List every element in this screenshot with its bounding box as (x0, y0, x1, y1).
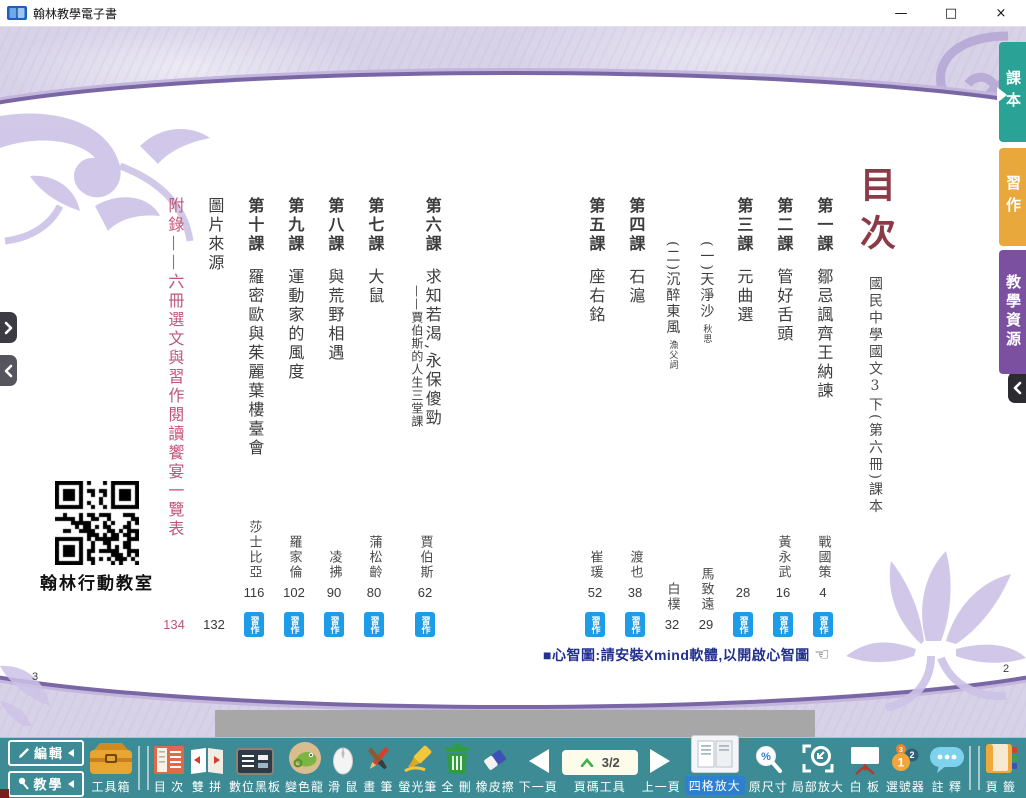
teach-mode-label: 教學 (33, 774, 63, 793)
book-stage: 課本 習作 教學資源 目次 國民中學國文3下(第六冊)課本 第一課鄒忌諷齊王納諫… (0, 26, 1026, 737)
toc-lesson-text: 座右銘 (586, 268, 605, 325)
trash-icon (443, 741, 471, 775)
toc-lesson-title[interactable]: 附錄——六冊選文與習作閱讀饗宴一覽表 (166, 197, 183, 539)
scrollbar-track (215, 710, 815, 737)
workbook-badge-label: 習作 (591, 616, 600, 634)
window-title: 翰林教學電子書 (33, 5, 117, 22)
toc-lesson-text: 石滬 (626, 268, 645, 306)
toc-lesson-title[interactable]: 第二課管好舌頭 (775, 197, 792, 344)
toc-lesson-title[interactable]: 第十課羅密歐與茱麗葉樓臺會 (246, 197, 263, 458)
toc-lesson-page[interactable]: 28 (736, 585, 750, 605)
brush-label: 畫 筆 (363, 778, 393, 795)
toc-lesson-number: 第四課 (626, 197, 645, 254)
chevron-right-icon (3, 321, 14, 335)
workbook-badge[interactable]: 習作 (324, 612, 344, 637)
mode-buttons: 編輯 教學 (8, 740, 84, 797)
page-number-left: 3 (32, 671, 38, 683)
workbook-badge[interactable]: 習作 (585, 612, 605, 637)
quad-zoom-icon (691, 735, 739, 773)
toc-lesson-column: 第四課石滬渡也38習作 (615, 197, 655, 637)
toc-lesson-number: 第九課 (285, 197, 304, 254)
edit-mode-button[interactable]: 編輯 (8, 740, 84, 766)
tab-workbook[interactable]: 習作 (999, 148, 1026, 246)
toc-lesson-text: 羅密歐與茱麗葉樓臺會 (245, 268, 264, 458)
workbook-badge[interactable]: 習作 (625, 612, 645, 637)
workbook-badge[interactable]: 習作 (284, 612, 304, 637)
workbook-badge-label: 習作 (779, 616, 788, 634)
quad-zoom-label: 四格放大 (685, 776, 745, 795)
toc-lesson-number: 第三課 (734, 197, 753, 254)
original-size-label: 原尺寸 (749, 778, 788, 795)
toc-lesson-column: 附錄——六冊選文與習作閱讀饗宴一覽表134 (154, 197, 194, 637)
prev-page-label: 上一頁 (642, 778, 681, 795)
qr-block: 翰林行動教室 (40, 481, 154, 594)
toc-lesson-text: 圖片來源 (205, 197, 224, 273)
app-window: 翰林教學電子書 — □ × (0, 0, 1026, 798)
workbook-badge[interactable]: 習作 (773, 612, 793, 637)
toc-lesson-column: 第五課座右銘崔瑗52習作 (575, 197, 615, 637)
toc-button[interactable]: 目 次 (153, 741, 185, 795)
toc-lesson-author: 賈伯斯 (416, 535, 435, 580)
toc-lesson-text: 鄒忌諷齊王納諫 (814, 268, 833, 401)
delete-all-label: 全 刪 (441, 778, 471, 795)
toc-lesson-column: 第二課管好舌頭黃永武16習作 (763, 197, 803, 637)
toc-lesson-text: (一)天淨沙 (698, 241, 714, 320)
toc-lesson-text: 求知若渴,永保傻勁 (423, 268, 442, 428)
chameleon-icon (288, 741, 322, 775)
toc-lesson-author: 白樸 (663, 582, 682, 612)
toc-lesson-annotation: 秋思 (701, 324, 711, 344)
toc-lesson-author: 黃永武 (774, 535, 793, 580)
toc-lesson-text: 運動家的風度 (285, 268, 304, 382)
digital-blackboard-button[interactable]: 數位黑板 (229, 741, 281, 795)
annotation-label: 註 釋 (932, 778, 962, 795)
chevron-left-icon (3, 364, 14, 378)
workbook-badge[interactable]: 習作 (813, 612, 833, 637)
close-button[interactable]: × (976, 0, 1026, 26)
workbook-badge-label: 習作 (739, 616, 748, 634)
arrow-left-icon (525, 741, 551, 775)
toc-lesson-subtitle: ——賈伯斯的人生三堂課 (410, 197, 423, 428)
toc-note-text: ■心智圖:請安裝Xmind軟體,以開啟心智圖 (543, 647, 810, 663)
mouse-button[interactable]: 滑 鼠 (328, 741, 358, 795)
svg-text:%: % (761, 751, 771, 763)
eraser-icon (480, 741, 510, 775)
qr-caption: 翰林行動教室 (40, 569, 154, 594)
number-picker-button[interactable]: 3 2 1 選號器 (886, 741, 925, 795)
partial-zoom-label: 局部放大 (792, 778, 844, 795)
original-size-button[interactable]: % 原尺寸 (749, 741, 788, 795)
pointing-hand-icon (814, 645, 830, 665)
page-back-button[interactable] (0, 355, 17, 386)
tab-resources-label: 教學資源 (1002, 274, 1023, 350)
toc-lesson-text: 附錄——六冊選文與習作閱讀饗宴一覽表 (165, 197, 184, 539)
toc-lesson-page[interactable]: 52 (588, 585, 602, 605)
toc-lesson-column: (二)沉醉東風漁父詞白樸32 (655, 197, 689, 637)
toc-lesson-title[interactable]: 圖片來源 (206, 197, 223, 273)
toc-title-block: 目次 國民中學國文3下(第六冊)課本 (843, 166, 907, 516)
eraser-button[interactable]: 橡皮擦 (476, 741, 515, 795)
whiteboard-button[interactable]: 白 板 (848, 741, 882, 795)
toc-lesson-title[interactable]: 第五課座右銘 (587, 197, 604, 325)
toc-title: 目次 (849, 166, 901, 262)
toc-lesson-number: 第八課 (325, 197, 344, 254)
toc-lesson-title[interactable]: 第七課大鼠 (366, 197, 383, 306)
page-tab-icon (984, 741, 1018, 775)
toc-lesson-page[interactable]: 29 (699, 617, 713, 637)
toc-lesson-title[interactable]: (一)天淨沙秋思 (699, 197, 714, 344)
toc-lesson-title[interactable]: 第三課元曲選 (735, 197, 752, 325)
workbook-badge-label: 習作 (819, 616, 828, 634)
svg-text:3: 3 (899, 747, 903, 754)
qr-code (55, 481, 139, 565)
mouse-icon (332, 741, 354, 775)
toc-lesson-author: 凌拂 (325, 550, 344, 580)
toc-lesson-column: 第八課與荒野相遇凌拂90習作 (314, 197, 354, 637)
toc-lesson-column: 第十課羅密歐與茱麗葉樓臺會莎士比亞116習作 (234, 197, 274, 637)
toc-lesson-page[interactable]: 62 (418, 585, 432, 605)
workbook-badge[interactable]: 習作 (364, 612, 384, 637)
blackboard-icon (236, 741, 274, 775)
toc-lesson-author: 崔瑗 (586, 550, 605, 580)
triangle-left-icon (68, 780, 74, 788)
toc-label: 目 次 (154, 778, 184, 795)
toc-lesson-page[interactable]: 102 (283, 585, 305, 605)
workbook-badge-label: 習作 (250, 616, 259, 634)
microphone-icon (18, 777, 29, 790)
toc-lesson-page[interactable]: 134 (163, 617, 185, 637)
page-indicator-field[interactable]: 3/2 (562, 750, 638, 775)
tab-resources[interactable]: 教學資源 (999, 250, 1026, 374)
toc-lesson-column: 圖片來源132 (194, 197, 234, 637)
toc-lesson-column: 第三課元曲選28習作 (723, 197, 763, 637)
prev-page-button[interactable]: 上一頁 (642, 741, 681, 795)
brush-button[interactable]: 畫 筆 (362, 741, 394, 795)
toc-lesson-column: 第七課大鼠蒲松齡80習作 (354, 197, 394, 637)
toolbox-icon (88, 741, 134, 775)
chevron-left-icon (1012, 381, 1023, 395)
toc-lesson-page[interactable]: 90 (327, 585, 341, 605)
toc-lesson-number: 第五課 (586, 197, 605, 254)
speech-bubble-icon (929, 741, 965, 775)
toc-lesson-title[interactable]: (二)沉醉東風漁父詞 (665, 197, 680, 370)
partial-zoom-button[interactable]: 局部放大 (792, 741, 844, 795)
maximize-button[interactable]: □ (926, 0, 976, 26)
brush-icon (362, 741, 394, 775)
toolbox-button[interactable]: 工具箱 (88, 741, 134, 795)
pencil-icon (18, 747, 30, 759)
taskbar-sliver (0, 789, 9, 798)
svg-text:2: 2 (910, 750, 915, 760)
toc-lesson-title[interactable]: 第六課求知若渴,永保傻勁——賈伯斯的人生三堂課 (410, 197, 439, 428)
whiteboard-label: 白 板 (850, 778, 880, 795)
toc-subtitle: 國民中學國文3下(第六冊)課本 (865, 276, 885, 516)
page-tool-label: 頁碼工具 (574, 778, 626, 795)
titlebar: 翰林教學電子書 — □ × (0, 0, 1026, 27)
blackboard-label: 數位黑板 (229, 778, 281, 795)
toc-lesson-number: 第二課 (774, 197, 793, 254)
twin-page-icon (189, 741, 225, 775)
workbook-badge-label: 習作 (290, 616, 299, 634)
toc-lesson-title[interactable]: 第八課與荒野相遇 (326, 197, 343, 363)
workbook-badge[interactable]: 習作 (244, 612, 264, 637)
chameleon-label: 變色龍 (285, 778, 324, 795)
toc-lesson-title[interactable]: 第九課運動家的風度 (286, 197, 303, 382)
toc-lesson-text: 管好舌頭 (774, 268, 793, 344)
toc-lesson-page[interactable]: 32 (665, 617, 679, 637)
page-number-tool[interactable]: 3/2 頁碼工具 (562, 741, 638, 795)
toc-lesson-column: 第六課求知若渴,永保傻勁——賈伯斯的人生三堂課賈伯斯62習作 (394, 197, 456, 637)
twin-page-button[interactable]: 雙 拼 (189, 741, 225, 795)
toc-lesson-column: 第九課運動家的風度羅家倫102習作 (274, 197, 314, 637)
highlighter-icon (401, 741, 435, 775)
twin-page-label: 雙 拼 (192, 778, 222, 795)
sidebar-collapse-button[interactable] (1008, 372, 1026, 403)
toc-lesson-page[interactable]: 4 (819, 585, 826, 605)
toc-lesson-text: 大鼠 (365, 268, 384, 306)
triangle-left-icon (68, 749, 74, 757)
next-page-button[interactable]: 下一頁 (519, 741, 558, 795)
highlighter-button[interactable]: 螢光筆 (398, 741, 437, 795)
quad-zoom-button[interactable]: 四格放大 (685, 741, 745, 795)
toc-lesson-author: 莎士比亞 (245, 520, 264, 580)
arrow-right-icon (648, 741, 674, 775)
app-logo-icon (7, 5, 27, 21)
toc-lesson-number: 第十課 (245, 197, 264, 254)
toc-lesson-text: 與荒野相遇 (325, 268, 344, 363)
toc-note: ■心智圖:請安裝Xmind軟體,以開啟心智圖 (543, 645, 830, 665)
mouse-label: 滑 鼠 (328, 778, 358, 795)
toc-lesson-number: 第一課 (814, 197, 833, 254)
toc-lesson-author: 羅家倫 (285, 535, 304, 580)
workbook-badge-label: 習作 (421, 616, 430, 634)
delete-all-button[interactable]: 全 刪 (441, 741, 471, 795)
teach-mode-button[interactable]: 教學 (8, 771, 84, 797)
highlighter-label: 螢光筆 (398, 778, 437, 795)
page-forward-button[interactable] (0, 312, 17, 343)
toc-lesson-text: 元曲選 (734, 268, 753, 325)
toc-lesson-number: 第七課 (365, 197, 384, 254)
page-tab-button[interactable]: 頁 籤 (984, 741, 1018, 795)
workbook-badge[interactable]: 習作 (733, 612, 753, 637)
bottom-toolbar: 編輯 教學 工具箱 (0, 737, 1026, 798)
toolbox-label: 工具箱 (91, 778, 130, 795)
minimize-button[interactable]: — (876, 0, 926, 26)
workbook-badge-label: 習作 (330, 616, 339, 634)
toolbar-separator (138, 746, 149, 790)
next-page-label: 下一頁 (519, 778, 558, 795)
edit-mode-label: 編輯 (34, 743, 64, 762)
page-tab-label: 頁 籤 (986, 778, 1016, 795)
toc-lesson-number: 第六課 (423, 197, 442, 254)
number-picker-icon: 3 2 1 (889, 741, 921, 775)
eraser-label: 橡皮擦 (476, 778, 515, 795)
region-magnifier-icon (802, 741, 834, 775)
number-picker-label: 選號器 (886, 778, 925, 795)
caret-up-icon (580, 758, 594, 767)
toc-left-page: 第六課求知若渴,永保傻勁——賈伯斯的人生三堂課賈伯斯62習作第七課大鼠蒲松齡80… (116, 197, 456, 637)
toc-lesson-author: 馬致遠 (697, 567, 716, 612)
toc-lesson-page[interactable]: 116 (244, 585, 265, 605)
toc-lesson-page[interactable]: 132 (203, 617, 225, 637)
percent-magnifier-icon: % (753, 741, 783, 775)
toc-lesson-text: (二)沉醉東風 (664, 241, 680, 336)
annotation-button[interactable]: 註 釋 (929, 741, 965, 795)
toc-lesson-title[interactable]: 第四課石滬 (627, 197, 644, 306)
toc-lesson-page[interactable]: 80 (367, 585, 381, 605)
toc-right-page: 第一課鄒忌諷齊王納諫戰國策4習作第二課管好舌頭黃永武16習作第三課元曲選28習作… (575, 197, 843, 637)
page-number-right: 2 (1003, 663, 1009, 675)
tab-workbook-label: 習作 (1002, 175, 1023, 219)
toc-lesson-author: 渡也 (626, 550, 645, 580)
toc-lesson-page[interactable]: 38 (628, 585, 642, 605)
toc-icon (153, 741, 185, 775)
chameleon-button[interactable]: 變色龍 (285, 741, 324, 795)
tab-textbook[interactable]: 課本 (999, 42, 1026, 142)
toc-lesson-author: 戰國策 (814, 535, 833, 580)
page-indicator-value: 3/2 (602, 755, 620, 770)
workbook-badge-label: 習作 (370, 616, 379, 634)
active-tab-notch (997, 87, 1007, 103)
toc-lesson-page[interactable]: 16 (776, 585, 790, 605)
whiteboard-icon (848, 741, 882, 775)
workbook-badge[interactable]: 習作 (415, 612, 435, 637)
toc-lesson-column: (一)天淨沙秋思馬致遠29 (689, 197, 723, 637)
toc-lesson-column: 第一課鄒忌諷齊王納諫戰國策4習作 (803, 197, 843, 637)
workbook-badge-label: 習作 (631, 616, 640, 634)
toc-lesson-author: 蒲松齡 (365, 535, 384, 580)
toc-lesson-annotation: 漁父詞 (667, 340, 677, 370)
toc-lesson-title[interactable]: 第一課鄒忌諷齊王納諫 (815, 197, 832, 401)
toolbar-separator (969, 746, 980, 790)
svg-text:1: 1 (898, 756, 905, 770)
